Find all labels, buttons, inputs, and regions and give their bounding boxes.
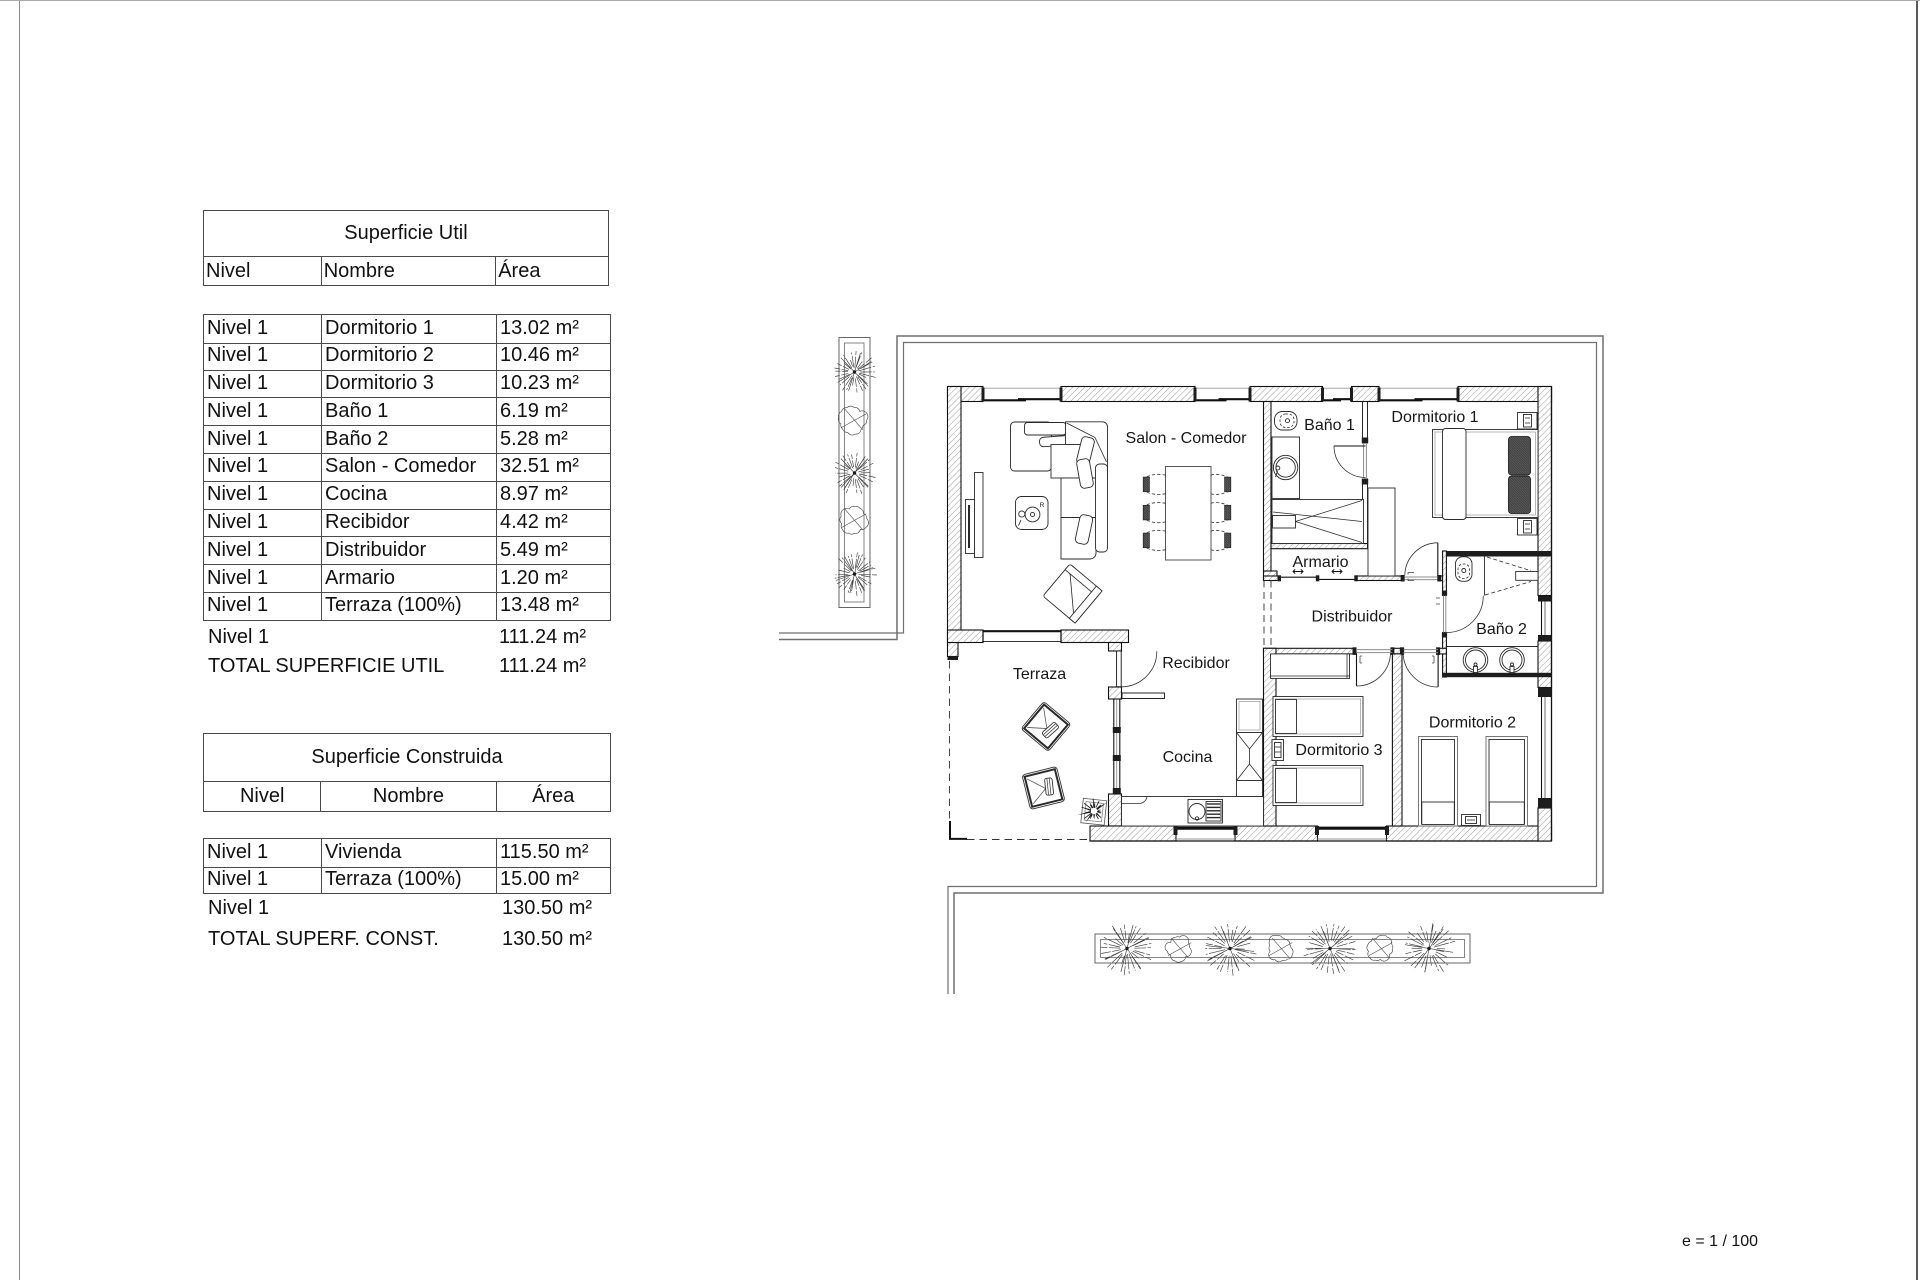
svg-text:Distribuidor: Distribuidor (1312, 609, 1394, 626)
svg-text:Baño 2: Baño 2 (1476, 621, 1527, 638)
svg-text:Armario: Armario (1292, 554, 1348, 571)
svg-text:Baño 1: Baño 1 (1304, 417, 1355, 434)
svg-text:Recibidor: Recibidor (1162, 655, 1230, 672)
svg-text:Dormitorio 3: Dormitorio 3 (1295, 742, 1382, 759)
svg-text:Salon - Comedor: Salon - Comedor (1126, 430, 1248, 447)
svg-text:Dormitorio 2: Dormitorio 2 (1429, 715, 1516, 732)
svg-text:Terraza: Terraza (1013, 666, 1066, 683)
svg-text:Cocina: Cocina (1163, 749, 1213, 766)
svg-text:R: R (1040, 502, 1045, 509)
svg-text:Dormitorio 1: Dormitorio 1 (1391, 409, 1478, 426)
